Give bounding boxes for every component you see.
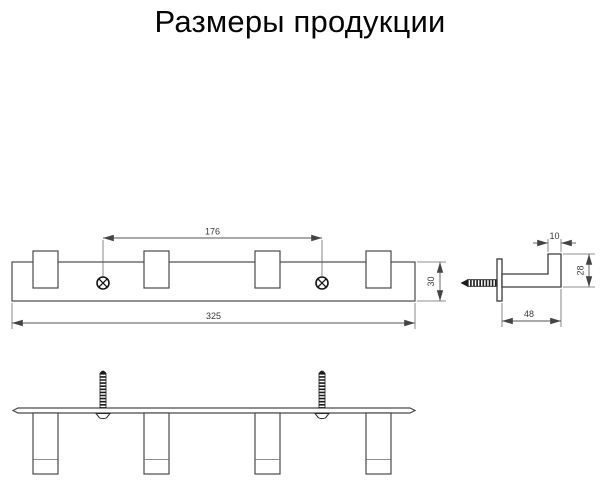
hook	[33, 251, 58, 288]
bottom-view	[13, 371, 415, 474]
wall-plate-side	[497, 259, 502, 301]
screw-front-icon	[316, 277, 328, 289]
dimension-hook-height: 28	[563, 254, 595, 287]
dimension-hook-depth: 48	[502, 289, 561, 327]
dim-label-48: 48	[524, 309, 534, 319]
dimension-rail-height: 30	[417, 262, 446, 301]
side-view: 10 28 48	[461, 231, 596, 327]
hook-profile	[502, 254, 561, 287]
hook	[255, 413, 280, 474]
screw-front-icon	[97, 277, 109, 289]
rail-front	[12, 262, 415, 301]
hook	[366, 251, 391, 288]
technical-drawing: 176 325 30	[0, 0, 600, 480]
dim-label-325: 325	[206, 311, 221, 321]
hook	[366, 413, 391, 474]
hook	[144, 413, 169, 474]
hook	[144, 251, 169, 288]
hook	[33, 413, 58, 474]
hook	[255, 251, 280, 288]
dim-label-176: 176	[205, 227, 220, 237]
front-view: 176 325 30	[12, 227, 446, 330]
rail-bottom	[13, 408, 415, 413]
dim-label-10: 10	[549, 231, 559, 241]
dimension-hook-lip: 10	[533, 231, 576, 252]
dim-label-28: 28	[576, 265, 586, 275]
dimension-drawing-page: Размеры продукции	[0, 0, 600, 480]
dim-label-30: 30	[426, 276, 436, 286]
screw-side-icon	[461, 280, 498, 287]
dimension-total-length: 325	[12, 303, 415, 329]
